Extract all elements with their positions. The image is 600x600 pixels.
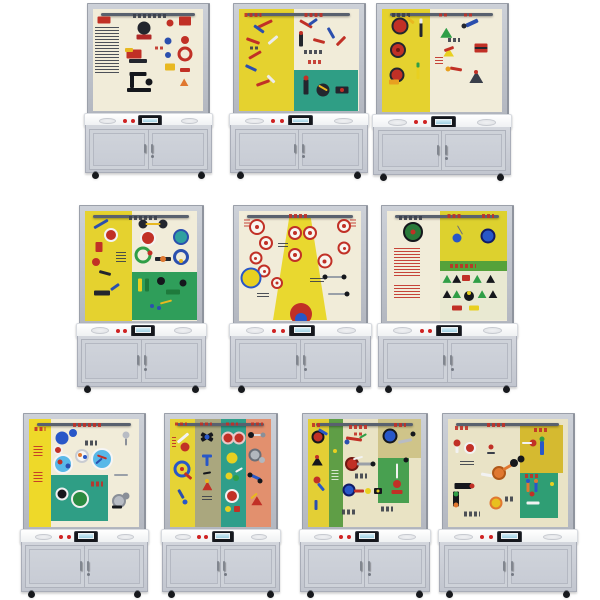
caster-wheel-icon [134, 591, 141, 598]
caster-wheel-icon [192, 386, 199, 393]
door-handle [80, 561, 82, 571]
exhibit-text [33, 446, 42, 456]
red-button-icon [272, 329, 276, 333]
exhibit-dot [410, 432, 415, 437]
exhibit-dot [78, 453, 82, 457]
exhibit-dot [157, 306, 161, 310]
keyhole-icon [304, 368, 307, 371]
exhibit-dot [376, 490, 379, 493]
door-handle [144, 144, 146, 153]
keyhole-icon [445, 157, 448, 160]
exhibit-text [312, 423, 322, 427]
speaker-grille-icon [477, 119, 496, 126]
display-window [170, 419, 271, 527]
exhibit-text [155, 46, 163, 49]
exhibit-gear [337, 219, 351, 233]
exhibit-dot [225, 473, 232, 480]
caster-wheel-icon [238, 386, 245, 393]
display-window [239, 9, 359, 111]
exhibit-dot [233, 475, 239, 481]
door-handle [511, 561, 513, 571]
exhibit-rect [125, 48, 133, 52]
exhibit-rect [462, 275, 470, 281]
exhibit-rect [138, 279, 142, 292]
door-handle [503, 561, 505, 571]
caster-wheel-icon [446, 591, 453, 598]
exhibit-rect [234, 506, 240, 512]
display-window [308, 419, 420, 527]
exhibit-dot [333, 449, 337, 453]
gear-center [255, 225, 259, 229]
exhibit-bar [522, 442, 532, 444]
exhibit-dot [396, 48, 400, 52]
keyhole-icon [368, 573, 371, 576]
exhibit-dot [140, 230, 156, 246]
exhibit-dot [540, 437, 545, 442]
display-window [93, 9, 203, 111]
exhibit-dot [295, 313, 307, 320]
red-button-icon [489, 535, 493, 539]
exhibit-dot [92, 258, 100, 266]
exhibit-dot [160, 256, 166, 262]
left-door [378, 130, 443, 171]
caster-wheel-icon [198, 172, 205, 179]
display-case [233, 3, 366, 115]
door-handle [450, 355, 452, 365]
caster-wheel-icon [356, 386, 363, 393]
exhibit-dot [534, 479, 538, 483]
exhibit-bar [206, 456, 209, 466]
caster-wheel-icon [92, 172, 99, 179]
fluorescent-lamp-icon [456, 423, 559, 426]
keyhole-icon [224, 573, 227, 576]
exhibit-dot [344, 292, 349, 297]
door-handle [151, 144, 153, 153]
control-screen-display [292, 118, 309, 124]
exhibit-dot [481, 229, 496, 244]
exhibit-text [73, 423, 103, 427]
exhibit-dot [166, 20, 173, 27]
keyhole-icon [451, 368, 454, 371]
cabinet-10 [438, 413, 578, 598]
caster-wheel-icon [84, 386, 91, 393]
control-screen-display [441, 327, 458, 333]
base-cabinet [230, 125, 367, 173]
left-door [235, 129, 300, 170]
red-button-icon [420, 329, 424, 333]
gear-center [323, 259, 327, 263]
exhibit-bar [146, 223, 161, 225]
gear-center [308, 231, 312, 235]
exhibit-text [487, 423, 505, 427]
exhibit-bar [125, 438, 127, 445]
exhibit-rect [179, 17, 191, 26]
door-handle [137, 355, 139, 365]
red-button-icon [428, 329, 432, 333]
exhibit-dot [65, 464, 70, 469]
left-door [81, 339, 142, 383]
caster-wheel-icon [416, 591, 423, 598]
door-handle [294, 144, 296, 153]
exhibit-text [85, 440, 97, 445]
exhibit-text [289, 214, 307, 218]
exhibit-dot [299, 31, 303, 35]
exhibit-dot [137, 22, 150, 35]
exhibit-dot [69, 429, 77, 437]
speaker-grille-icon [388, 119, 407, 126]
red-button-icon [197, 535, 201, 539]
exhibit-text [257, 293, 269, 299]
exhibit-rect [389, 80, 399, 85]
exhibit-text [342, 509, 356, 514]
exhibit-bar [420, 23, 423, 37]
exhibit-text [394, 423, 406, 427]
exhibit-rect [95, 242, 102, 252]
exhibit-bar [487, 452, 495, 454]
exhibit-gear [338, 242, 351, 255]
exhibit-text [381, 507, 393, 512]
exhibit-text [91, 481, 103, 486]
base-cabinet [439, 542, 576, 593]
exhibit-dot [240, 267, 261, 288]
cabinet-1 [84, 3, 213, 179]
exhibit-text [250, 46, 260, 49]
exhibit-text [460, 461, 474, 467]
cabinet-2 [229, 3, 369, 179]
red-button-icon [339, 535, 343, 539]
display-case [376, 3, 509, 116]
display-case [381, 205, 515, 325]
exhibit-dot [453, 503, 458, 508]
exhibit-text [95, 27, 119, 73]
cabinet-3 [372, 3, 512, 181]
speaker-grille-icon [181, 118, 198, 125]
exhibit-dot [147, 250, 152, 255]
exhibit-dot [391, 17, 408, 34]
speaker-grille-icon [175, 534, 191, 541]
display-case [442, 413, 575, 531]
keyhole-icon [144, 368, 147, 371]
exhibit-dot [464, 442, 476, 454]
keyhole-icon [151, 155, 154, 158]
display-window [239, 211, 362, 321]
exhibit-dot [150, 304, 154, 308]
exhibit-dot [526, 479, 530, 483]
keyhole-icon [302, 155, 305, 158]
caster-wheel-icon [28, 591, 35, 598]
exhibit-dot [179, 259, 183, 263]
exhibit-dot [83, 455, 87, 459]
right-door [447, 339, 512, 383]
red-button-icon [131, 119, 135, 123]
red-button-icon [67, 535, 71, 539]
exhibit-text [310, 278, 324, 284]
right-door [507, 545, 572, 588]
exhibit-dot [226, 452, 237, 463]
exhibit-text [355, 474, 367, 479]
cabinet-7 [20, 413, 149, 598]
exhibit-dot [260, 433, 265, 438]
caster-wheel-icon [503, 386, 510, 393]
exhibit-text [251, 423, 263, 426]
gear-center [263, 270, 266, 273]
exhibit-dot [247, 472, 252, 477]
exhibit-dot [173, 229, 189, 245]
exhibit-text [33, 472, 42, 482]
right-door [364, 545, 425, 588]
exhibit-rect [392, 490, 403, 494]
exhibit-text [304, 50, 322, 54]
speaker-grille-icon [91, 327, 108, 334]
red-button-icon [116, 329, 120, 333]
exhibit-dot [488, 444, 493, 449]
exhibit-text [525, 474, 539, 478]
caster-wheel-icon [168, 591, 175, 598]
left-door [444, 545, 509, 588]
exhibit-text [35, 427, 46, 431]
right-door [441, 130, 506, 171]
cabinet-4 [76, 205, 207, 393]
display-cabinet-collage [0, 0, 600, 600]
door-handle [302, 144, 304, 153]
exhibit-dot [510, 459, 518, 467]
gear-center [342, 224, 346, 228]
speaker-grille-icon [251, 534, 267, 541]
exhibit-text [308, 60, 322, 64]
speaker-grille-icon [454, 534, 473, 541]
exhibit-rect [130, 72, 147, 76]
exhibit-gear [303, 226, 317, 240]
red-button-icon [280, 119, 284, 123]
exhibit-dot [56, 432, 69, 445]
exhibit-rect [303, 79, 308, 94]
exhibit-dot [445, 66, 450, 71]
exhibit-dot [183, 499, 188, 504]
gear-center [293, 231, 297, 235]
exhibit-text [200, 423, 212, 426]
exhibit-text [202, 496, 212, 502]
base-cabinet [300, 542, 429, 593]
exhibit-dot [146, 79, 153, 86]
exhibit-dot [205, 435, 210, 440]
caster-wheel-icon [267, 591, 274, 598]
door-handle [443, 355, 445, 365]
base-cabinet [85, 125, 211, 173]
display-window [387, 211, 508, 321]
red-button-icon [281, 329, 285, 333]
exhibit-dot [259, 457, 265, 463]
exhibit-dot [469, 483, 474, 488]
exhibit-dot [393, 480, 401, 488]
exhibit-rect [526, 501, 539, 504]
exhibit-text [399, 216, 423, 220]
exhibit-text [332, 470, 339, 480]
right-door [148, 129, 208, 170]
display-window [29, 419, 139, 527]
speaker-grille-icon [117, 534, 134, 541]
exhibit-bar [328, 293, 346, 295]
exhibit-dot [383, 429, 398, 444]
exhibit-dot [180, 280, 187, 287]
caster-wheel-icon [385, 386, 392, 393]
exhibit-dot [340, 88, 344, 92]
left-door [25, 545, 85, 588]
exhibit-text [305, 13, 324, 17]
caster-wheel-icon [380, 174, 387, 181]
exhibit-text [534, 428, 548, 432]
exhibit-dot [342, 274, 347, 279]
exhibit-rect [129, 59, 147, 63]
base-cabinet [21, 542, 147, 593]
speaker-grille-icon [246, 327, 265, 334]
right-door [300, 339, 366, 383]
exhibit-bar [354, 490, 364, 493]
exhibit-dot [225, 489, 239, 503]
exhibit-dot [157, 277, 165, 285]
speaker-grille-icon [245, 118, 264, 125]
display-window [85, 211, 196, 321]
exhibit-bar [130, 74, 134, 88]
exhibit-dot [122, 493, 129, 500]
exhibit-dot [71, 490, 89, 508]
exhibit-text [278, 243, 288, 249]
fluorescent-lamp-icon [247, 13, 350, 16]
exhibit-dot [248, 432, 254, 438]
caster-wheel-icon [497, 174, 504, 181]
right-door [298, 129, 363, 170]
speaker-grille-icon [393, 327, 412, 334]
display-case [233, 205, 369, 325]
speaker-grille-icon [334, 118, 353, 125]
exhibit-dot [181, 36, 189, 44]
exhibit-ring [178, 46, 193, 61]
exhibit-dot [180, 467, 184, 471]
cabinet-8 [161, 413, 281, 598]
exhibit-dot [53, 454, 73, 474]
exhibit-dot [489, 496, 502, 509]
display-case [23, 413, 146, 531]
exhibit-dot [257, 479, 262, 484]
door-handle [368, 561, 370, 571]
exhibit-text [172, 437, 176, 449]
right-door [220, 545, 276, 588]
door-handle [87, 561, 89, 571]
gear-center [343, 247, 346, 250]
speaker-grille-icon [543, 534, 562, 541]
red-button-icon [414, 120, 418, 124]
exhibit-rect [166, 290, 180, 295]
exhibit-gear [271, 277, 283, 289]
exhibit-gear [249, 252, 262, 265]
exhibit-dot [344, 439, 349, 444]
red-button-icon [271, 119, 275, 123]
exhibit-gear [288, 248, 302, 262]
red-button-icon [123, 119, 127, 123]
exhibit-text [394, 248, 420, 276]
exhibit-text [116, 252, 126, 262]
exhibit-dot [452, 234, 461, 243]
exhibit-dot [529, 492, 534, 497]
exhibit-dot [104, 228, 118, 242]
keyhole-icon [87, 573, 90, 576]
gear-center [254, 257, 257, 260]
speaker-grille-icon [314, 534, 332, 541]
exhibit-text [226, 423, 238, 426]
keyhole-icon [511, 573, 514, 576]
exhibit-bar [112, 506, 122, 509]
exhibit-rect [180, 68, 190, 72]
exhibit-rect [469, 306, 479, 311]
exhibit-text [448, 214, 463, 218]
exhibit-dot [232, 432, 245, 445]
base-cabinet [373, 127, 510, 176]
exhibit-text [175, 423, 187, 426]
exhibit-dot [165, 52, 171, 58]
gear-center [275, 282, 278, 285]
display-case [87, 3, 210, 115]
display-window [448, 419, 568, 527]
exhibit-text [482, 214, 494, 218]
exhibit-dot [371, 462, 376, 467]
exhibit-dot [315, 455, 319, 459]
exhibit-rect [540, 441, 544, 455]
door-handle [217, 561, 219, 571]
exhibit-text [448, 38, 460, 42]
exhibit-text [450, 264, 476, 268]
exhibit-bar [114, 474, 128, 476]
caster-wheel-icon [307, 591, 314, 598]
gear-center [293, 253, 297, 257]
control-screen-display [135, 327, 151, 333]
red-button-icon [423, 120, 427, 124]
control-screen-display [78, 533, 94, 539]
exhibit-dot [365, 488, 371, 494]
exhibit-rect [165, 64, 175, 71]
exhibit-dot [56, 488, 69, 501]
exhibit-dot [474, 70, 478, 74]
left-door [235, 339, 301, 383]
control-screen-display [435, 119, 452, 125]
exhibit-text [133, 14, 167, 18]
exhibit-gear [249, 219, 265, 235]
exhibit-rect [94, 291, 110, 296]
door-handle [303, 355, 305, 365]
exhibit-text [435, 57, 443, 65]
caster-wheel-icon [563, 591, 570, 598]
exhibit-dot [453, 492, 458, 497]
exhibit-text [244, 13, 261, 17]
exhibit-dot [181, 442, 190, 451]
speaker-grille-icon [35, 534, 52, 541]
exhibit-text [464, 511, 480, 516]
cabinet-9 [299, 413, 431, 598]
exhibit-bar [416, 62, 419, 67]
display-window [382, 9, 502, 112]
right-door [84, 545, 144, 588]
exhibit-dot [303, 76, 308, 81]
cabinet-5 [229, 205, 372, 393]
exhibit-gear [288, 226, 302, 240]
left-door [89, 129, 149, 170]
exhibit-rect [452, 306, 462, 311]
exhibit-dot [467, 291, 471, 295]
display-case [164, 413, 278, 531]
exhibit-bar [396, 463, 398, 478]
exhibit-text [455, 426, 469, 430]
display-case [302, 413, 427, 531]
exhibit-rect [136, 34, 151, 39]
left-door [304, 545, 365, 588]
